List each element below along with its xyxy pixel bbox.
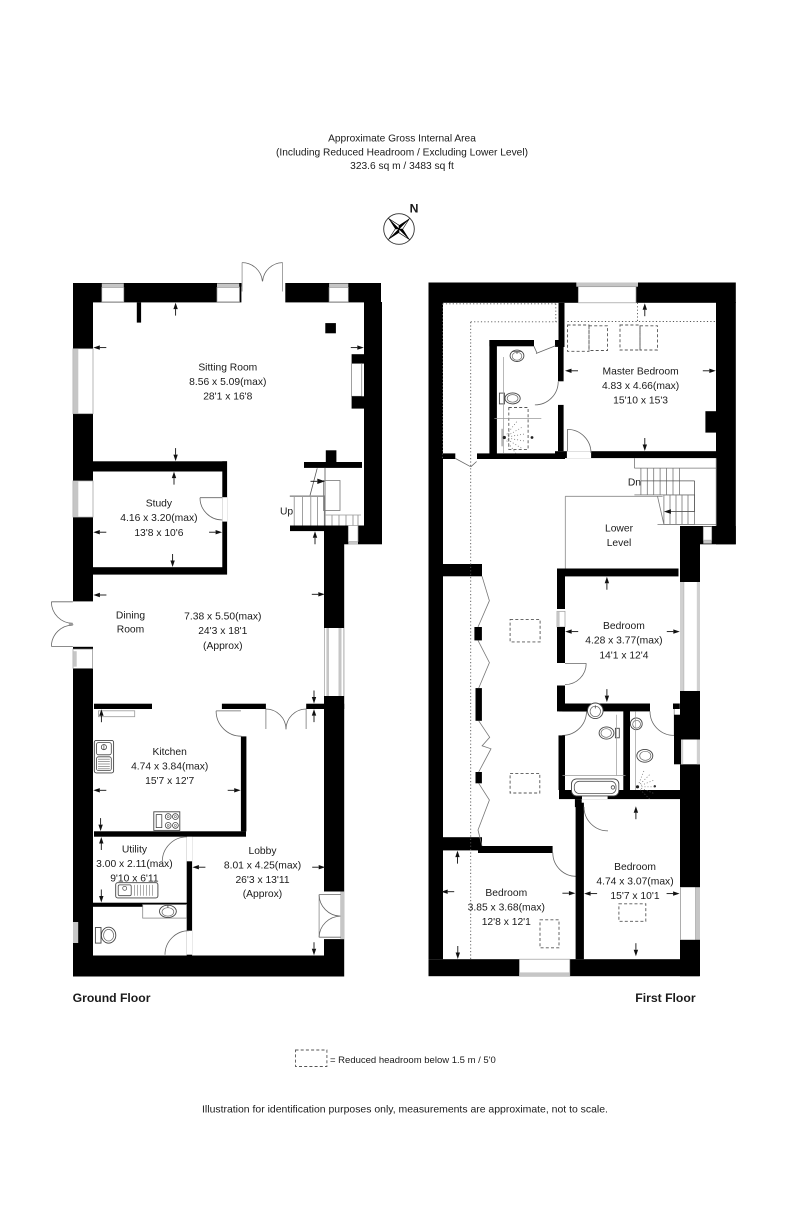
svg-text:15'7 x 12'7: 15'7 x 12'7 [145, 776, 194, 787]
svg-text:14'1 x 12'4: 14'1 x 12'4 [599, 650, 648, 661]
svg-text:Ground Floor: Ground Floor [73, 991, 151, 1005]
svg-text:Study: Study [146, 498, 173, 509]
svg-text:Utility: Utility [122, 845, 148, 856]
svg-text:= Reduced headroom below 1.5: = Reduced headroom below 1.5 m / 5'0 [330, 1055, 496, 1066]
svg-text:Room: Room [117, 625, 144, 636]
svg-text:N: N [410, 202, 419, 216]
svg-text:Bedroom: Bedroom [614, 862, 656, 873]
svg-text:8.01 x 4.25(max): 8.01 x 4.25(max) [224, 860, 301, 871]
svg-text:Approximate Gross Internal Are: Approximate Gross Internal Area [328, 134, 476, 145]
svg-text:3.85 x 3.68(max): 3.85 x 3.68(max) [468, 902, 545, 913]
svg-text:Dn: Dn [628, 478, 641, 489]
svg-text:Kitchen: Kitchen [153, 747, 188, 758]
svg-text:7.38 x 5.50(max): 7.38 x 5.50(max) [184, 612, 261, 623]
svg-text:Sitting Room: Sitting Room [198, 363, 257, 374]
svg-text:26'3 x 13'11: 26'3 x 13'11 [235, 875, 289, 886]
svg-text:Level: Level [607, 538, 632, 549]
svg-text:323.6 sq m / 3483 sq ft: 323.6 sq m / 3483 sq ft [350, 161, 454, 172]
svg-text:28'1 x 16'8: 28'1 x 16'8 [203, 392, 252, 403]
svg-text:12'8 x 12'1: 12'8 x 12'1 [482, 917, 531, 928]
svg-text:15'10 x 15'3: 15'10 x 15'3 [613, 396, 668, 407]
svg-text:Illustration for identificatio: Illustration for identification purposes… [202, 1105, 608, 1116]
svg-text:24'3 x 18'1: 24'3 x 18'1 [198, 626, 247, 637]
svg-text:Up: Up [280, 506, 293, 517]
svg-text:9'10 x 6'11: 9'10 x 6'11 [110, 873, 159, 884]
svg-text:3.00 x 2.11(max): 3.00 x 2.11(max) [96, 859, 173, 870]
svg-text:4.83 x 4.66(max): 4.83 x 4.66(max) [602, 381, 679, 392]
svg-text:Lower: Lower [605, 524, 634, 535]
svg-text:First Floor: First Floor [635, 991, 696, 1005]
svg-text:4.28 x 3.77(max): 4.28 x 3.77(max) [585, 636, 662, 647]
svg-text:(Approx): (Approx) [203, 641, 242, 652]
svg-text:4.74 x 3.07(max): 4.74 x 3.07(max) [596, 876, 673, 887]
svg-text:Lobby: Lobby [248, 846, 277, 857]
svg-text:(Including Reduced Headroom /: (Including Reduced Headroom / Excluding … [276, 147, 528, 158]
svg-text:(Approx): (Approx) [243, 889, 282, 900]
svg-text:Bedroom: Bedroom [485, 888, 527, 899]
svg-text:13'8 x 10'6: 13'8 x 10'6 [134, 528, 183, 539]
svg-text:8.56 x 5.09(max): 8.56 x 5.09(max) [189, 377, 266, 388]
svg-text:4.16 x 3.20(max): 4.16 x 3.20(max) [120, 513, 197, 524]
svg-text:Dining: Dining [116, 610, 145, 621]
svg-text:Bedroom: Bedroom [603, 621, 645, 632]
svg-text:Master Bedroom: Master Bedroom [603, 367, 679, 378]
svg-text:4.74 x 3.84(max): 4.74 x 3.84(max) [131, 762, 208, 773]
svg-text:15'7 x 10'1: 15'7 x 10'1 [610, 891, 659, 902]
